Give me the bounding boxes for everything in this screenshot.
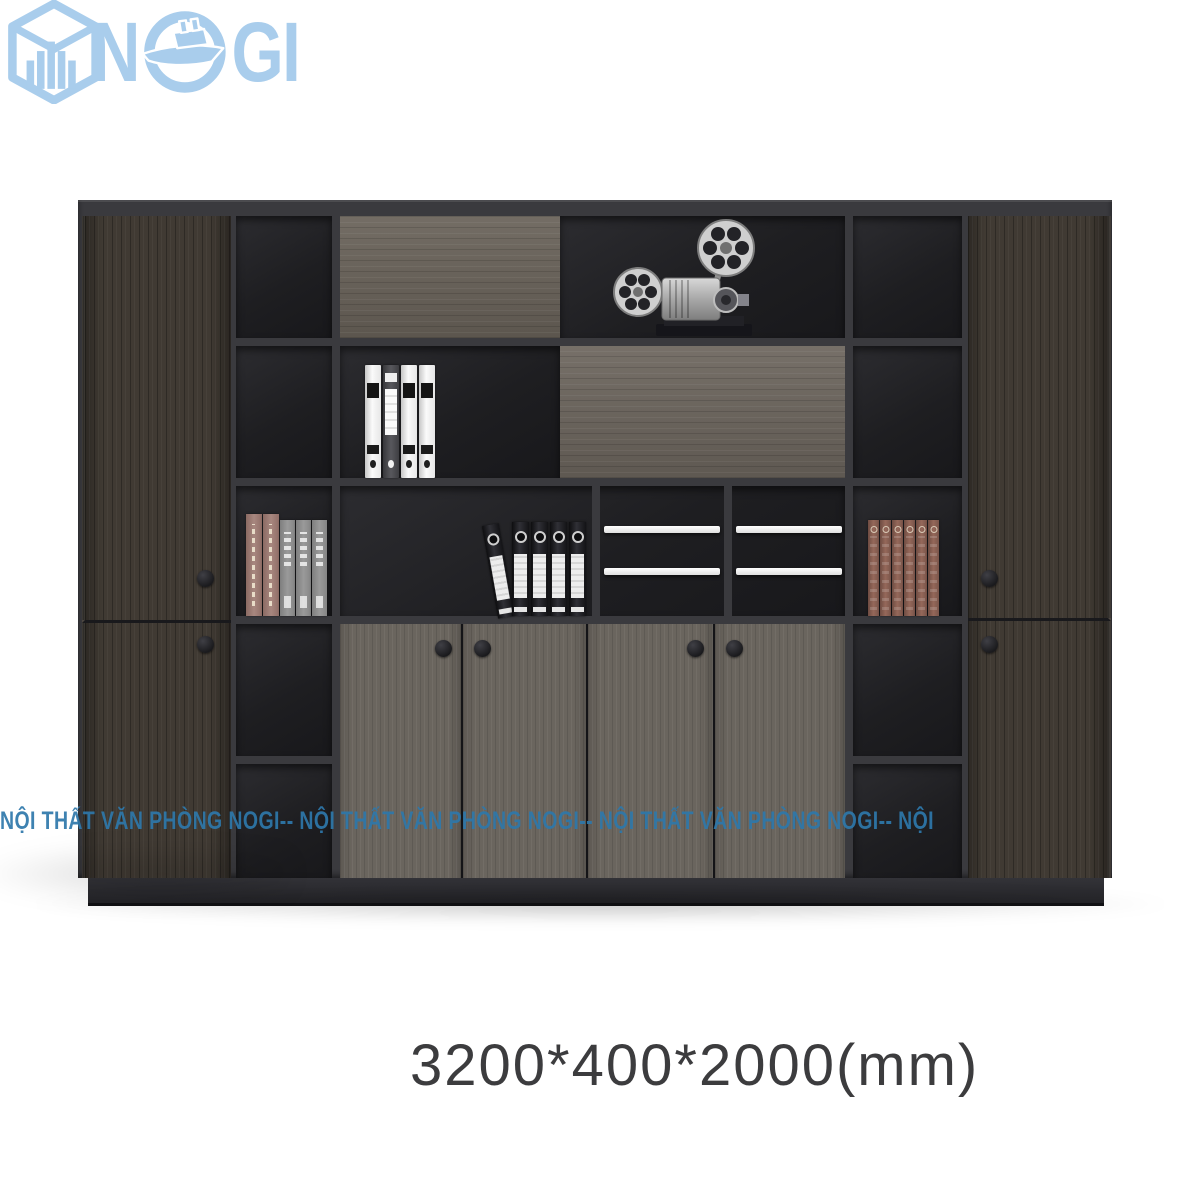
watermark-text: NỘI THẤT VĂN PHÒNG NOGI-- NỘI THẤT VĂN P…: [0, 804, 936, 840]
book: [312, 520, 327, 616]
product-image: N GI: [0, 0, 1200, 1200]
display-rail: [604, 526, 720, 533]
left-upper-door: [82, 216, 231, 623]
left-cubby-4: [236, 624, 332, 756]
film-reel-right: [698, 220, 754, 276]
dimension-caption: 3200*400*2000(mm): [410, 1032, 979, 1099]
ship-icon: [137, 6, 229, 98]
right-upper-door-knob: [981, 570, 998, 587]
middle-door-1-knob: [435, 640, 452, 657]
pink-gray-books: [246, 514, 328, 616]
red-books: [868, 520, 940, 616]
book: [904, 520, 915, 616]
binder: [531, 522, 548, 616]
nogi-logo: N GI: [6, 0, 307, 110]
display-rail: [736, 526, 842, 533]
left-cubby-1: [236, 216, 332, 338]
binder: [512, 522, 529, 616]
right-cubby-1: [853, 216, 962, 338]
film-reel-left: [614, 268, 662, 316]
right-cubby-4: [853, 624, 962, 756]
book: [263, 514, 279, 616]
film-projector: [598, 216, 798, 338]
book: [280, 520, 295, 616]
left-cubby-2: [236, 346, 332, 478]
logo-letters-gi: GI: [231, 0, 299, 104]
book: [868, 520, 879, 616]
middle-door-2-knob: [474, 640, 491, 657]
binder: [419, 365, 435, 478]
logo-letter-n: N: [92, 0, 139, 104]
book: [928, 520, 939, 616]
book: [246, 514, 262, 616]
left-lower-door-knob: [197, 636, 214, 653]
divider: [592, 486, 600, 616]
right-lower-door: [968, 621, 1111, 878]
top-sliding-panel-left: [340, 216, 560, 338]
middle-door-3-knob: [687, 640, 704, 657]
right-upper-door: [968, 216, 1111, 621]
left-upper-door-knob: [197, 570, 214, 587]
hexagon-building-icon: [6, 0, 102, 104]
binder: [401, 365, 417, 478]
binder: [569, 522, 586, 616]
book: [880, 520, 891, 616]
display-rail: [604, 568, 720, 575]
display-rail: [736, 568, 842, 575]
right-lower-door-knob: [981, 636, 998, 653]
filing-cabinet: [78, 200, 1112, 878]
binder: [383, 365, 399, 478]
binder: [550, 522, 567, 616]
book: [916, 520, 927, 616]
book: [296, 520, 311, 616]
black-binders: [498, 522, 588, 616]
binder: [365, 365, 381, 478]
floor-shadow: [30, 886, 1170, 922]
book: [892, 520, 903, 616]
sliding-panel-right: [560, 346, 845, 478]
middle-door-4-knob: [726, 640, 743, 657]
right-cubby-2: [853, 346, 962, 478]
white-binders: [365, 365, 437, 478]
divider: [724, 486, 732, 616]
